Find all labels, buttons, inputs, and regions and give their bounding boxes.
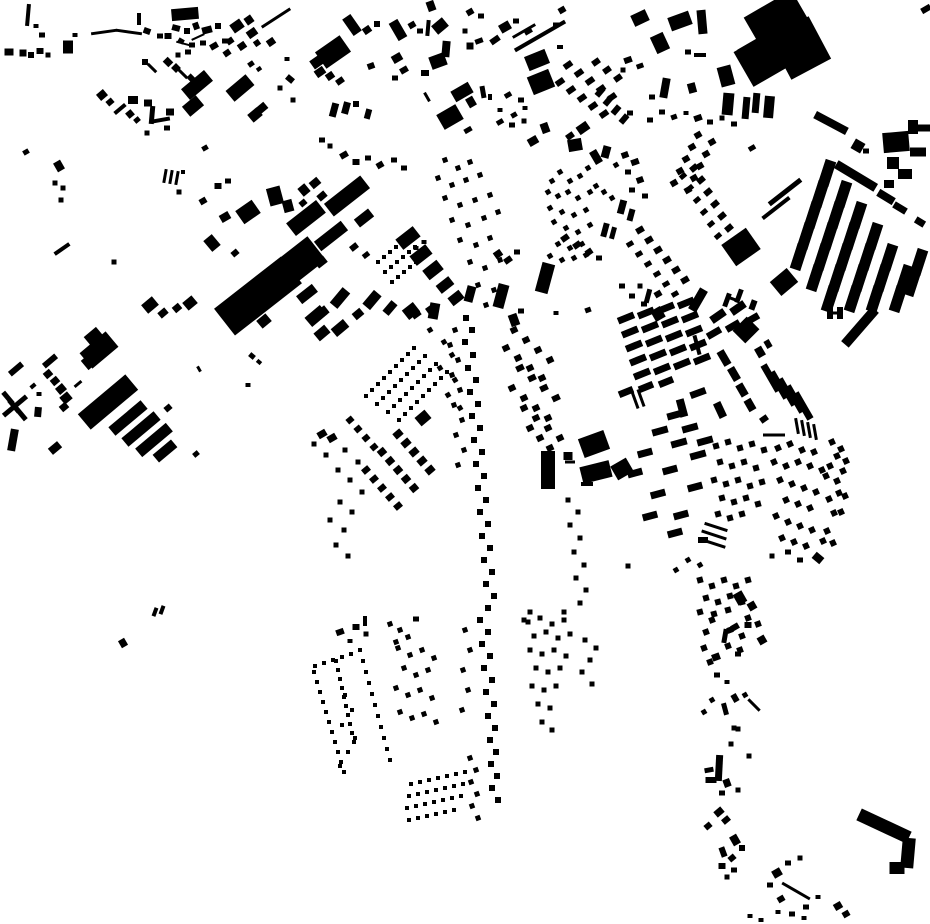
building xyxy=(312,670,316,674)
building xyxy=(806,422,812,438)
building xyxy=(747,698,760,711)
building xyxy=(564,452,573,460)
building xyxy=(425,814,429,818)
building xyxy=(495,797,501,803)
building xyxy=(478,14,484,19)
building xyxy=(910,148,926,157)
building xyxy=(385,747,389,751)
building xyxy=(424,464,435,475)
building xyxy=(720,576,727,583)
building xyxy=(588,658,593,663)
building xyxy=(575,195,582,202)
building xyxy=(687,482,703,493)
building xyxy=(585,165,592,172)
building xyxy=(563,225,570,232)
building xyxy=(559,209,566,216)
building xyxy=(431,655,437,661)
building xyxy=(554,311,559,315)
building xyxy=(673,358,691,371)
building xyxy=(774,444,782,452)
building xyxy=(825,495,833,503)
building xyxy=(393,685,399,691)
building xyxy=(562,610,567,615)
building xyxy=(703,821,712,830)
building xyxy=(508,313,521,327)
building xyxy=(401,665,407,671)
building xyxy=(477,425,483,431)
building xyxy=(689,387,706,399)
building xyxy=(510,111,518,118)
building xyxy=(714,232,723,240)
building xyxy=(522,618,527,623)
building xyxy=(423,354,427,358)
building xyxy=(118,638,128,648)
building xyxy=(408,446,419,457)
building xyxy=(819,537,827,545)
building xyxy=(449,352,456,359)
building xyxy=(324,710,328,714)
building xyxy=(417,687,423,693)
building xyxy=(601,145,612,159)
building xyxy=(571,212,578,219)
building xyxy=(342,770,346,774)
building xyxy=(564,654,569,659)
building xyxy=(185,50,191,55)
building xyxy=(389,19,408,41)
building xyxy=(37,48,44,54)
building xyxy=(724,642,732,650)
building xyxy=(14,407,27,422)
building xyxy=(343,448,348,453)
building xyxy=(473,377,479,383)
building xyxy=(518,309,524,314)
building xyxy=(465,96,477,109)
building xyxy=(763,434,785,437)
building xyxy=(453,432,459,438)
building xyxy=(349,242,359,252)
building xyxy=(225,37,234,46)
building xyxy=(588,101,599,111)
building xyxy=(565,461,575,464)
building xyxy=(833,477,841,485)
building xyxy=(379,725,383,729)
building xyxy=(50,376,61,387)
building xyxy=(545,189,552,196)
building xyxy=(700,644,708,652)
building xyxy=(452,327,458,333)
building xyxy=(485,629,491,635)
building xyxy=(407,21,416,30)
building xyxy=(459,707,465,713)
building xyxy=(710,199,720,209)
building xyxy=(509,123,515,128)
building xyxy=(589,149,603,165)
building xyxy=(703,187,713,197)
building xyxy=(548,706,553,711)
building xyxy=(374,21,380,27)
building xyxy=(470,352,476,358)
building xyxy=(7,428,19,451)
building xyxy=(504,91,513,99)
building xyxy=(392,404,396,408)
building xyxy=(702,594,709,601)
building xyxy=(591,57,601,67)
building xyxy=(618,386,635,398)
building xyxy=(610,104,621,116)
building xyxy=(563,60,574,70)
building xyxy=(635,250,644,258)
building xyxy=(452,808,456,812)
building xyxy=(354,209,374,228)
building xyxy=(59,402,70,413)
building xyxy=(585,76,596,86)
building xyxy=(285,57,290,61)
building xyxy=(557,169,564,176)
building xyxy=(203,234,220,252)
building xyxy=(580,670,585,675)
building xyxy=(201,144,209,151)
building xyxy=(754,346,766,359)
building xyxy=(746,482,753,489)
building xyxy=(415,400,419,404)
building xyxy=(481,215,487,221)
building xyxy=(828,438,836,446)
building xyxy=(759,918,764,922)
building xyxy=(341,101,351,114)
building xyxy=(752,464,759,471)
building xyxy=(520,394,529,402)
building xyxy=(410,386,414,390)
building xyxy=(348,722,352,726)
building xyxy=(463,177,469,183)
building xyxy=(918,125,930,132)
building xyxy=(662,465,678,476)
building xyxy=(892,201,908,214)
building xyxy=(400,437,411,448)
building xyxy=(391,52,404,64)
building xyxy=(487,235,493,241)
building xyxy=(471,437,477,443)
building xyxy=(315,680,319,684)
building xyxy=(547,253,554,260)
building xyxy=(230,248,239,257)
building xyxy=(574,576,579,581)
building xyxy=(400,358,404,362)
building xyxy=(22,148,30,155)
building xyxy=(327,720,331,724)
building xyxy=(452,377,459,384)
building xyxy=(782,496,790,504)
building xyxy=(409,782,413,786)
building xyxy=(740,458,747,465)
building xyxy=(361,659,365,663)
building xyxy=(338,500,343,505)
building xyxy=(508,384,517,392)
building xyxy=(481,665,487,671)
building xyxy=(797,558,803,563)
building xyxy=(738,632,746,640)
building xyxy=(487,737,493,743)
building xyxy=(641,302,647,307)
building xyxy=(407,818,411,822)
building xyxy=(898,169,912,179)
building xyxy=(406,235,410,239)
building xyxy=(567,178,574,185)
building xyxy=(475,282,481,288)
building xyxy=(425,20,430,36)
building xyxy=(367,681,371,685)
building xyxy=(285,74,295,84)
building xyxy=(417,29,423,34)
building xyxy=(401,255,405,259)
building xyxy=(566,498,571,503)
building xyxy=(553,23,559,28)
building xyxy=(489,785,495,791)
building xyxy=(463,126,472,134)
building xyxy=(530,684,535,689)
building xyxy=(416,455,427,466)
building xyxy=(658,376,675,388)
building xyxy=(535,262,555,294)
building xyxy=(460,667,466,673)
building xyxy=(557,6,566,15)
building xyxy=(416,380,420,384)
building xyxy=(650,32,670,54)
building xyxy=(736,788,741,793)
building xyxy=(644,289,652,304)
building xyxy=(485,521,491,527)
building xyxy=(520,404,529,412)
building xyxy=(572,550,577,555)
building xyxy=(182,95,204,117)
building xyxy=(445,392,452,399)
building xyxy=(416,816,420,820)
building xyxy=(491,287,497,293)
building xyxy=(465,8,474,17)
building xyxy=(542,688,547,693)
building xyxy=(350,708,354,712)
building xyxy=(353,424,362,433)
building xyxy=(353,624,360,630)
building xyxy=(637,448,653,459)
building xyxy=(784,518,792,526)
building xyxy=(338,677,342,681)
building xyxy=(411,366,415,370)
building xyxy=(328,144,333,149)
building xyxy=(914,216,926,227)
building xyxy=(419,647,425,653)
building xyxy=(626,240,635,248)
building xyxy=(388,370,392,374)
building xyxy=(522,336,531,344)
building xyxy=(422,260,444,281)
building xyxy=(353,159,360,165)
building xyxy=(602,65,612,75)
building xyxy=(621,326,639,339)
building xyxy=(352,740,356,744)
building xyxy=(335,628,345,636)
building xyxy=(626,564,631,569)
building xyxy=(387,621,393,627)
buildings-individual xyxy=(1,0,930,922)
building xyxy=(667,528,683,539)
building xyxy=(599,109,610,119)
building xyxy=(567,245,574,252)
building xyxy=(576,121,591,135)
building xyxy=(172,303,183,314)
building xyxy=(334,659,338,663)
building xyxy=(538,374,547,382)
building xyxy=(565,189,572,196)
building xyxy=(397,709,403,715)
building-footprint-canvas xyxy=(0,0,930,924)
building xyxy=(324,453,329,458)
building xyxy=(584,588,589,593)
building xyxy=(669,179,678,188)
building xyxy=(442,195,448,201)
building xyxy=(392,76,398,81)
building xyxy=(319,138,325,143)
building xyxy=(165,33,172,39)
building xyxy=(432,800,436,804)
building xyxy=(475,485,481,491)
building xyxy=(395,260,399,264)
building xyxy=(381,396,385,400)
building xyxy=(619,284,625,289)
building xyxy=(494,773,500,779)
building xyxy=(477,172,483,178)
building xyxy=(576,510,581,515)
building xyxy=(363,616,367,626)
building xyxy=(790,243,808,271)
building xyxy=(225,179,231,184)
building xyxy=(405,634,411,640)
building xyxy=(353,101,359,107)
building xyxy=(91,29,117,36)
building xyxy=(436,776,440,780)
building xyxy=(636,176,645,184)
building xyxy=(717,65,736,88)
building xyxy=(493,283,510,309)
building xyxy=(600,222,609,237)
building xyxy=(541,451,555,489)
building xyxy=(168,170,173,184)
building xyxy=(157,34,163,39)
building xyxy=(617,312,635,325)
building xyxy=(704,767,714,773)
building xyxy=(342,528,347,533)
building xyxy=(296,284,318,304)
building xyxy=(489,677,495,683)
building xyxy=(360,490,365,495)
building xyxy=(736,727,741,732)
building xyxy=(387,390,391,394)
building xyxy=(198,197,207,206)
building xyxy=(467,43,474,50)
building xyxy=(557,45,563,49)
building xyxy=(487,545,493,551)
building xyxy=(393,501,403,511)
building xyxy=(707,220,716,228)
building xyxy=(722,93,735,116)
building xyxy=(53,160,65,173)
building xyxy=(434,788,438,792)
building xyxy=(196,366,202,373)
building xyxy=(721,228,760,267)
building xyxy=(389,265,393,269)
building xyxy=(184,28,190,34)
building xyxy=(876,189,896,205)
building xyxy=(653,245,663,254)
building xyxy=(625,340,643,353)
building xyxy=(386,410,390,414)
building xyxy=(803,905,809,910)
building xyxy=(540,652,545,657)
building xyxy=(162,169,167,183)
building xyxy=(455,462,461,468)
building xyxy=(409,483,420,494)
building xyxy=(540,720,545,725)
building xyxy=(837,508,845,516)
building xyxy=(696,175,706,185)
building xyxy=(352,308,365,321)
building xyxy=(382,736,386,740)
building xyxy=(328,518,333,523)
building xyxy=(685,50,691,55)
building xyxy=(609,227,617,240)
building xyxy=(407,794,411,798)
building xyxy=(393,639,399,645)
building xyxy=(473,767,479,773)
building xyxy=(459,417,465,423)
building xyxy=(754,620,762,628)
building xyxy=(226,74,255,101)
building xyxy=(339,760,343,764)
building xyxy=(837,445,845,453)
building xyxy=(468,779,474,785)
building xyxy=(578,536,583,541)
building xyxy=(431,17,449,34)
building xyxy=(532,634,537,639)
building xyxy=(375,402,379,406)
building xyxy=(767,883,773,888)
building xyxy=(724,438,731,445)
building xyxy=(731,868,737,873)
building xyxy=(550,728,555,733)
building xyxy=(587,189,594,196)
building xyxy=(385,492,395,502)
building xyxy=(393,465,404,476)
building xyxy=(770,268,798,296)
building xyxy=(778,534,786,542)
building xyxy=(556,636,561,641)
building xyxy=(436,104,464,130)
building xyxy=(474,37,483,44)
building xyxy=(330,287,351,309)
building xyxy=(748,144,757,152)
building xyxy=(235,200,261,225)
building xyxy=(192,450,200,458)
building xyxy=(641,321,659,334)
building xyxy=(503,255,513,265)
building xyxy=(582,563,587,568)
building xyxy=(256,66,262,72)
building xyxy=(730,498,737,505)
building xyxy=(760,446,767,453)
building xyxy=(667,11,692,32)
building xyxy=(43,369,54,380)
building xyxy=(479,86,486,99)
